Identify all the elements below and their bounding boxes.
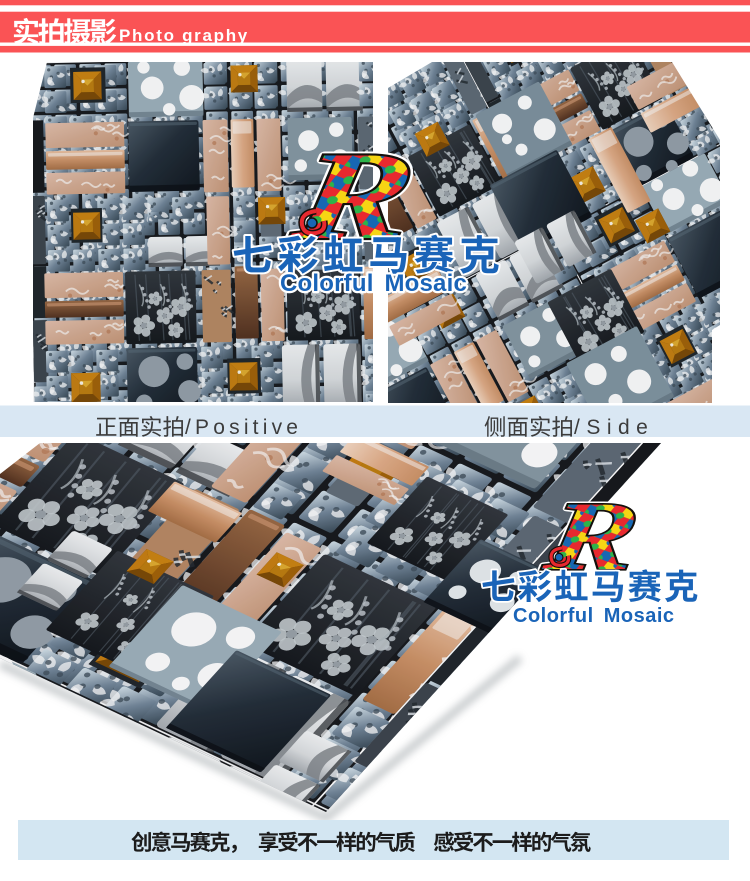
svg-text:Photo graphy: Photo graphy — [119, 26, 249, 45]
svg-text:/Side: /Side — [574, 416, 654, 439]
svg-text:/Positive: /Positive — [185, 416, 302, 439]
svg-text:Colorful Mosaic: Colorful Mosaic — [280, 270, 467, 297]
svg-text:Colorful Mosaic: Colorful Mosaic — [513, 605, 675, 627]
